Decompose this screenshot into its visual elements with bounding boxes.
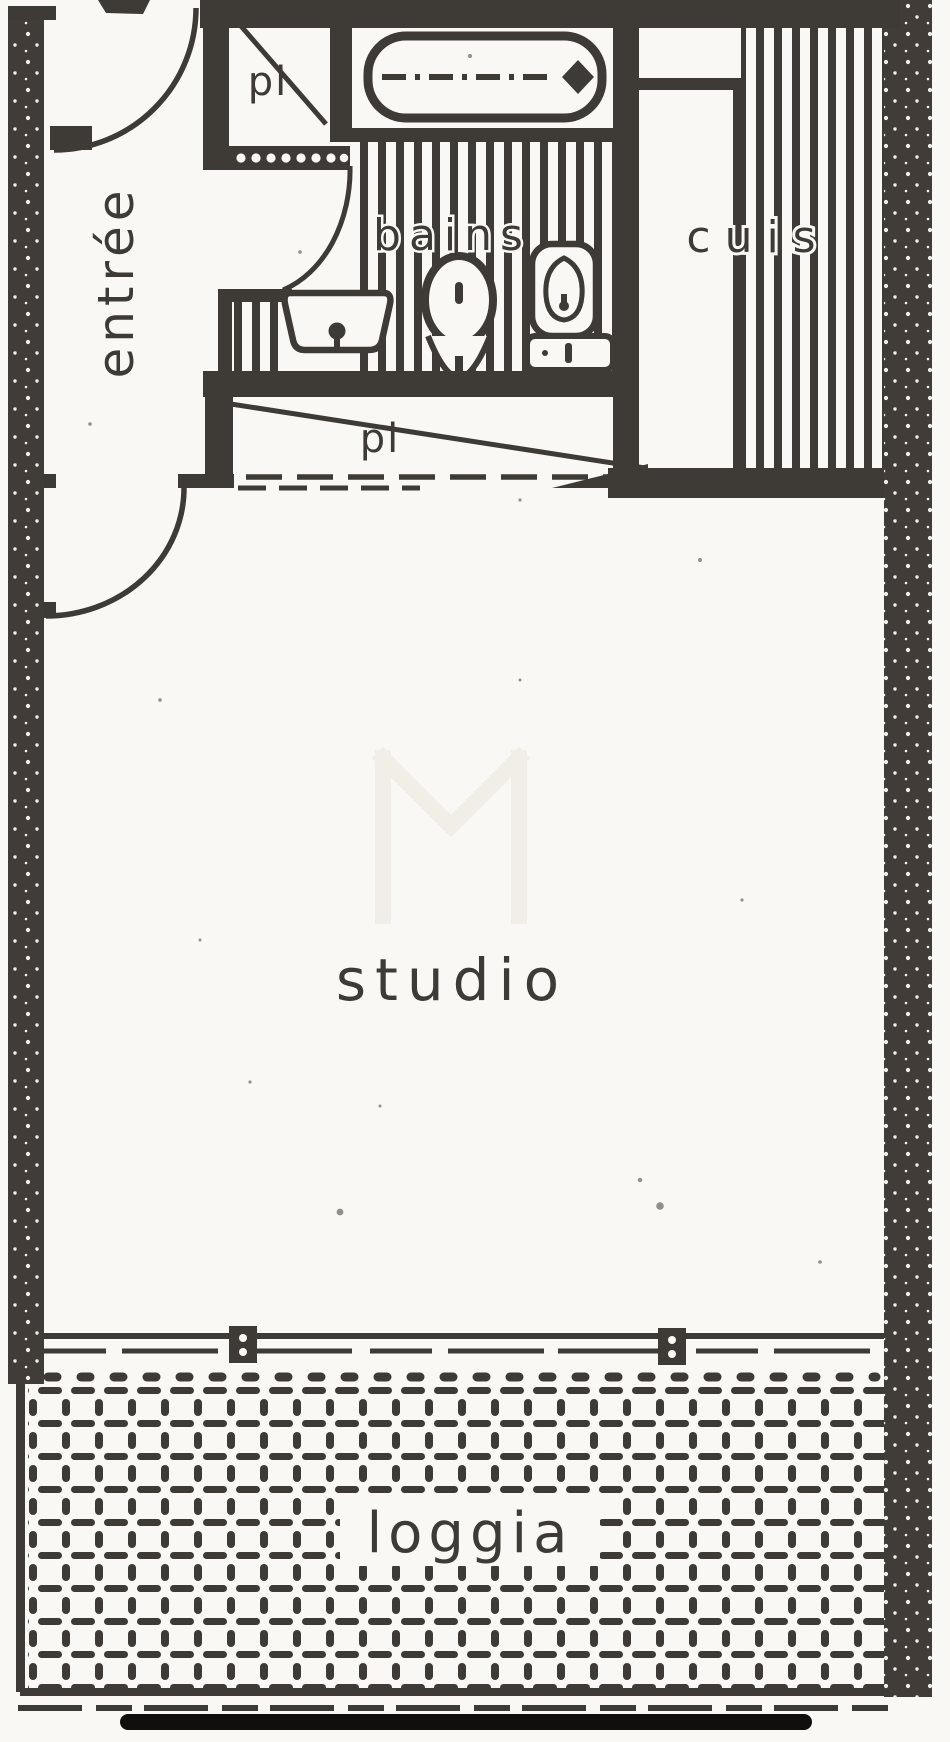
bathroom-threshold-stripes [233, 291, 285, 374]
top-wall [200, 0, 900, 28]
closet-entry-label: pl [248, 59, 289, 105]
right-wall [884, 0, 932, 1697]
entrance-label: entrée [87, 185, 145, 378]
left-wall [8, 6, 44, 1384]
entrance-door-stop [50, 126, 92, 150]
bidet [532, 244, 596, 336]
kitchen-left-wall [613, 8, 639, 490]
floor-plan-drawing: studio entrée pl [0, 0, 950, 1742]
top-wall-left-stub [8, 6, 56, 20]
bathroom-label: bains [373, 210, 531, 261]
bottom-bar [120, 1714, 812, 1730]
floor-plan-page: studio entrée pl [0, 0, 950, 1742]
bathtub [368, 36, 602, 118]
loggia-left-line [16, 1380, 25, 1692]
washbasin-drain [329, 323, 346, 340]
room-loggia: loggia [16, 1377, 896, 1708]
room-kitchen: cuis [608, 8, 884, 498]
kitchen-corridor-line [733, 90, 741, 474]
basin-alcove-wall-left [218, 289, 232, 377]
bathtub-bottom-wall [352, 128, 613, 142]
bathroom-bottom-wall [203, 371, 639, 397]
window-mullion-right [658, 1328, 686, 1365]
kitchen-bottom-wall [608, 468, 884, 498]
kitchen-top-notch [639, 24, 741, 78]
window-mullion-left [229, 1326, 257, 1363]
closet-hall-label: pl [360, 416, 401, 462]
closet-entry-left-wall [203, 8, 229, 170]
loggia-bottom-edge [20, 1688, 892, 1696]
bath-shelf-box [527, 336, 613, 370]
loggia-label: loggia [367, 1501, 574, 1566]
closet-hall-wall-stub [178, 474, 234, 488]
studio-label: studio [336, 946, 568, 1014]
bathtub-left-wall [330, 8, 352, 142]
kitchen-label: cuis [686, 212, 829, 263]
top-edge-mark [98, 0, 150, 14]
kitchen-notch-divider [639, 78, 741, 90]
kitchen-corridor [639, 90, 733, 470]
washbasin [285, 293, 391, 350]
